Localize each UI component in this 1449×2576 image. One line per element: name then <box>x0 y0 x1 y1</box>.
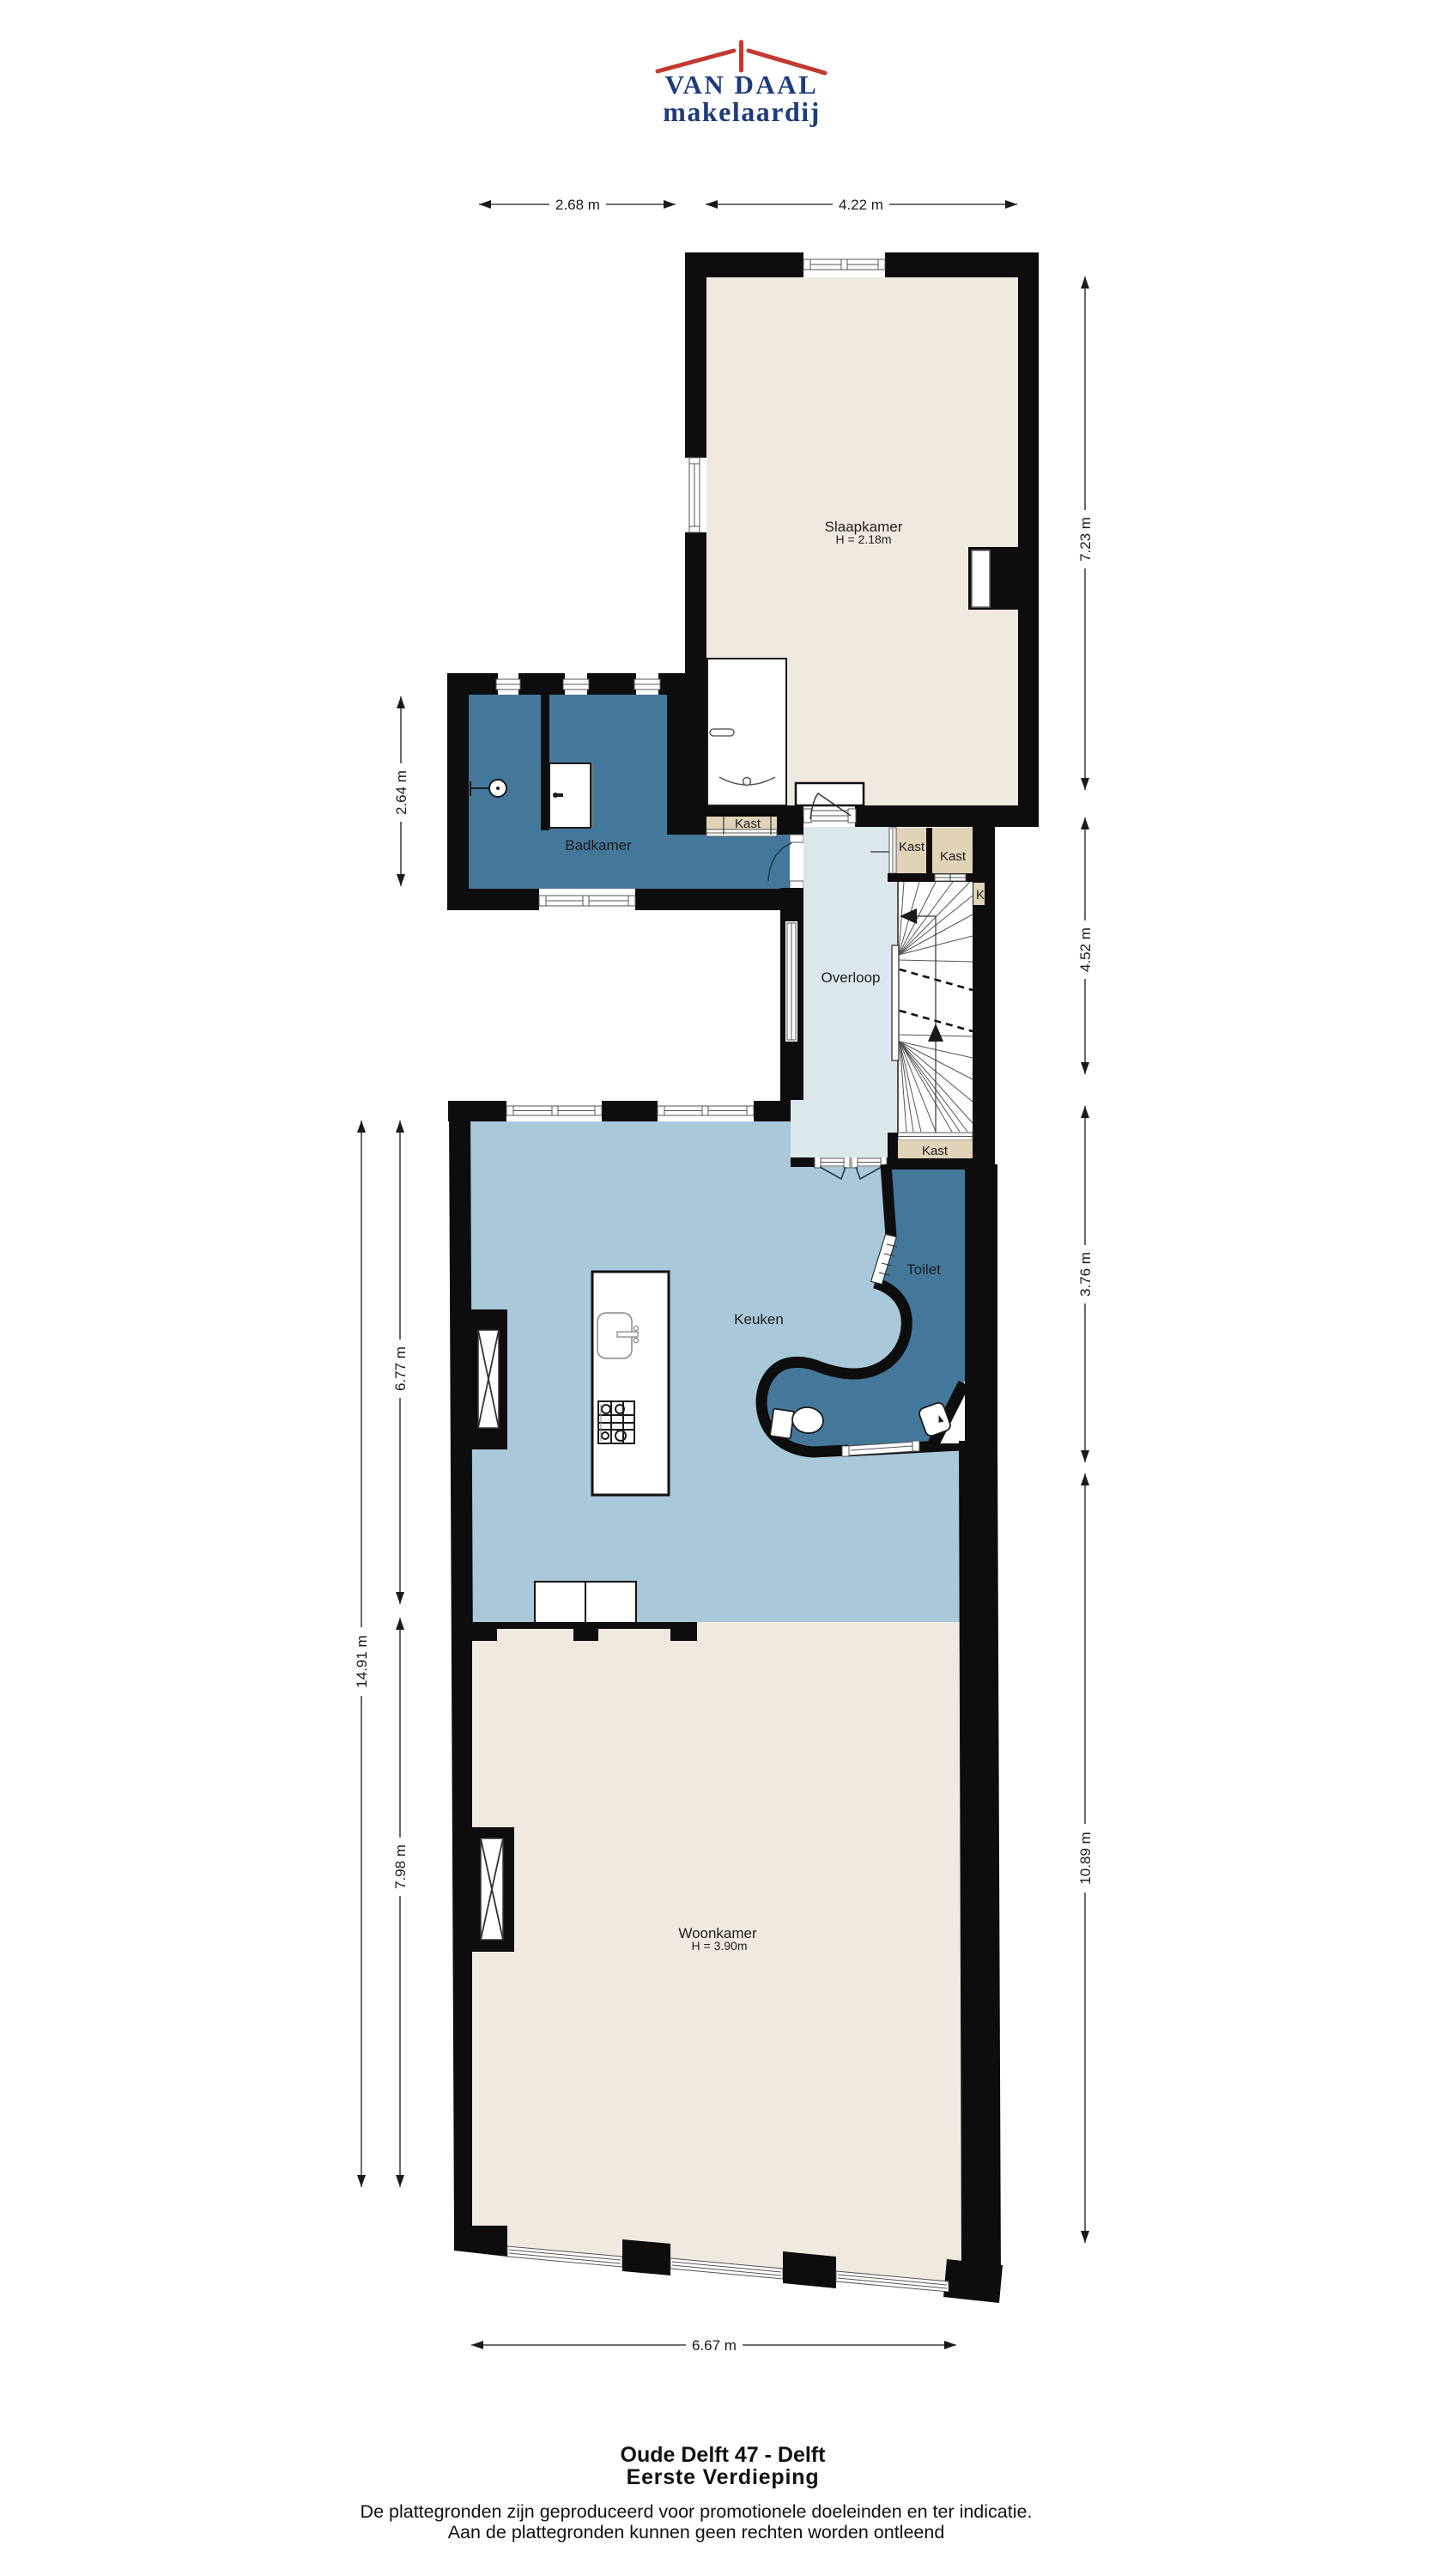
svg-text:Keuken: Keuken <box>734 1311 784 1327</box>
svg-text:Aan de plattegronden kunnen ge: Aan de plattegronden kunnen geen rechten… <box>448 2522 945 2543</box>
svg-text:10.89 m: 10.89 m <box>1077 1832 1094 1884</box>
svg-text:Kast: Kast <box>922 1144 949 1158</box>
svg-text:H = 3.90m: H = 3.90m <box>692 1939 748 1953</box>
svg-text:K: K <box>976 888 985 902</box>
svg-text:De plattegronden zijn geproduc: De plattegronden zijn geproduceerd voor … <box>361 2501 1033 2522</box>
svg-text:4.52 m: 4.52 m <box>1077 927 1094 972</box>
svg-text:6.77 m: 6.77 m <box>392 1346 409 1391</box>
svg-text:7.23 m: 7.23 m <box>1077 517 1094 562</box>
svg-text:14.91 m: 14.91 m <box>354 1635 370 1687</box>
svg-text:Eerste Verdieping: Eerste Verdieping <box>627 2465 820 2489</box>
svg-text:VAN DAAL: VAN DAAL <box>665 70 819 100</box>
svg-text:Kast: Kast <box>735 817 761 831</box>
svg-text:H = 2.18m: H = 2.18m <box>836 532 892 546</box>
svg-text:7.98 m: 7.98 m <box>392 1844 409 1889</box>
svg-text:3.76 m: 3.76 m <box>1077 1252 1094 1297</box>
svg-text:Kast: Kast <box>899 840 925 854</box>
svg-text:Toilet: Toilet <box>906 1261 941 1278</box>
svg-text:Oude Delft 47 - Delft: Oude Delft 47 - Delft <box>621 2443 827 2467</box>
svg-text:2.68 m: 2.68 m <box>555 197 600 213</box>
svg-text:2.64 m: 2.64 m <box>393 770 409 815</box>
svg-text:Badkamer: Badkamer <box>565 837 632 854</box>
svg-text:Overloop: Overloop <box>822 969 881 986</box>
svg-text:Kast: Kast <box>940 849 967 864</box>
svg-text:makelaardij: makelaardij <box>663 96 821 127</box>
svg-text:4.22 m: 4.22 m <box>839 197 883 213</box>
svg-text:6.67 m: 6.67 m <box>692 2337 737 2354</box>
